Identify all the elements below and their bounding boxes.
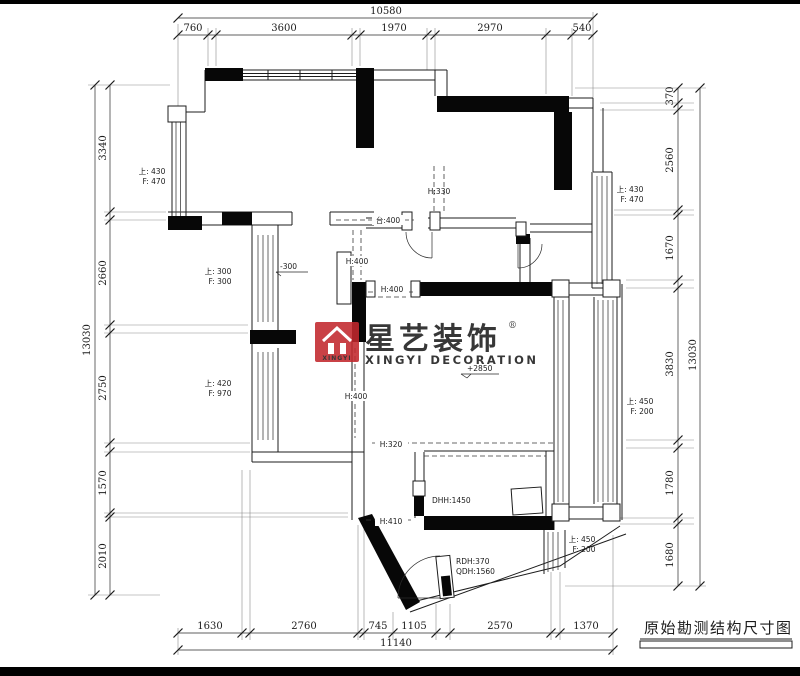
beam-label: H:330 bbox=[428, 187, 451, 196]
logo-cn-text: 星艺装饰 bbox=[365, 322, 501, 357]
dim-right-seg: 1680 bbox=[665, 542, 676, 567]
dim-right-total: 13030 bbox=[688, 339, 699, 371]
dim-top-total: 10580 bbox=[370, 6, 402, 17]
dim-top-seg: 540 bbox=[572, 23, 591, 34]
logo-badge-text: XINGYI bbox=[322, 355, 351, 362]
door-label: RDH:370 bbox=[456, 557, 490, 566]
title-underline-bar bbox=[640, 641, 792, 648]
window-label: 上: 450 bbox=[627, 397, 654, 406]
bay-column bbox=[603, 280, 620, 297]
dim-bottom-seg: 745 bbox=[368, 621, 387, 632]
dim-right-seg: 2560 bbox=[665, 147, 676, 172]
dim-top: 10580 760 3600 1970 2970 540 bbox=[174, 6, 598, 40]
dim-right-seg: 1780 bbox=[665, 470, 676, 495]
bay-column bbox=[603, 504, 620, 521]
dim-bottom-seg: 2570 bbox=[487, 621, 512, 632]
dim-bottom-seg: 1630 bbox=[197, 621, 222, 632]
door-jamb bbox=[411, 281, 420, 297]
window-label: 上: 300 bbox=[205, 267, 232, 276]
door-jamb bbox=[430, 212, 440, 230]
window-label: F: 470 bbox=[621, 195, 644, 204]
dim-right-seg: 3830 bbox=[665, 351, 676, 376]
window-label: F: 200 bbox=[573, 545, 596, 554]
dim-right-seg: 1670 bbox=[665, 235, 676, 260]
beam-label: H:320 bbox=[380, 440, 403, 449]
dim-top-seg: 760 bbox=[183, 23, 202, 34]
dim-left-seg: 1570 bbox=[98, 470, 109, 495]
drawing-title: 原始勘测结构尺寸图 bbox=[644, 619, 793, 637]
dim-left-seg: 3340 bbox=[98, 135, 109, 160]
beam-label: H:400 bbox=[345, 392, 368, 401]
window-label: F: 300 bbox=[209, 277, 232, 286]
beam-label: H:410 bbox=[380, 517, 403, 526]
dim-top-seg: 3600 bbox=[271, 23, 296, 34]
bay-column bbox=[552, 504, 569, 521]
dim-bottom-seg: 1370 bbox=[573, 621, 598, 632]
door-label: DHH:1450 bbox=[432, 496, 471, 505]
top-edge-bar bbox=[0, 0, 800, 4]
level-marker-symbol bbox=[276, 272, 308, 276]
beam-label: 台:400 bbox=[376, 215, 401, 225]
dim-right: 13030 370 2560 1670 3830 1780 1680 bbox=[665, 84, 705, 591]
title-block: 原始勘测结构尺寸图 bbox=[640, 619, 793, 648]
door-post bbox=[414, 496, 424, 516]
logo-house-pillar bbox=[328, 343, 334, 354]
dim-left-total: 13030 bbox=[82, 324, 93, 356]
fixture-box bbox=[511, 487, 543, 515]
dim-left: 13030 3340 2660 2750 1570 2010 bbox=[82, 81, 115, 600]
dim-bottom-total: 11140 bbox=[380, 638, 412, 649]
level-marker-text: -300 bbox=[280, 262, 297, 271]
window-label: 上: 430 bbox=[617, 185, 644, 194]
corner-column bbox=[168, 106, 186, 122]
logo-registered-mark: ® bbox=[508, 321, 517, 331]
window-label: 上: 420 bbox=[205, 379, 232, 388]
dim-right-seg: 370 bbox=[665, 86, 676, 105]
bay-column bbox=[552, 280, 569, 297]
blueprint-canvas: 10580 760 3600 1970 2970 540 13030 3340 … bbox=[0, 0, 800, 676]
dim-left-seg: 2010 bbox=[98, 543, 109, 568]
window-label: 上: 430 bbox=[139, 167, 166, 176]
window-label: F: 470 bbox=[143, 177, 166, 186]
beam-label: H:400 bbox=[346, 257, 369, 266]
beam-label: H:400 bbox=[381, 285, 404, 294]
door-jamb bbox=[516, 222, 526, 236]
door-label: QDH:1560 bbox=[456, 567, 495, 576]
window-label: F: 970 bbox=[209, 389, 232, 398]
dim-left-seg: 2750 bbox=[98, 375, 109, 400]
dim-bottom-seg: 1105 bbox=[401, 621, 426, 632]
logo-house-pillar bbox=[340, 343, 346, 354]
door-jamb bbox=[366, 281, 375, 297]
dim-top-seg: 2970 bbox=[477, 23, 502, 34]
dim-bottom-seg: 2760 bbox=[291, 621, 316, 632]
logo-watermark: XINGYI 星艺装饰 ® XINGYI DECORATION bbox=[315, 321, 538, 367]
floor-plan-page: 10580 760 3600 1970 2970 540 13030 3340 … bbox=[0, 0, 800, 676]
dim-top-seg: 1970 bbox=[381, 23, 406, 34]
level-marker-symbol bbox=[461, 374, 499, 378]
dim-left-seg: 2660 bbox=[98, 260, 109, 285]
logo-en-text: XINGYI DECORATION bbox=[365, 353, 538, 367]
window-label: 上: 450 bbox=[569, 535, 596, 544]
door-jamb bbox=[413, 481, 425, 496]
bottom-edge-bar bbox=[0, 667, 800, 676]
window-label: F: 200 bbox=[631, 407, 654, 416]
door-swing bbox=[406, 232, 432, 258]
